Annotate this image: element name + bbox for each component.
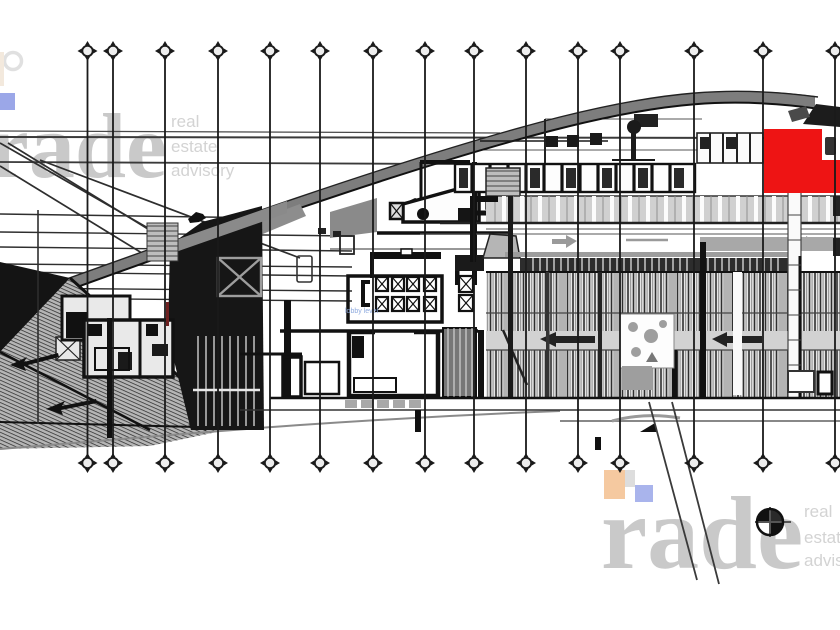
svg-text:estate: estate <box>804 528 840 547</box>
svg-text:real: real <box>171 112 199 131</box>
svg-text:real: real <box>804 502 832 521</box>
svg-text:estate: estate <box>171 137 217 156</box>
svg-text:advisory: advisory <box>804 551 840 570</box>
